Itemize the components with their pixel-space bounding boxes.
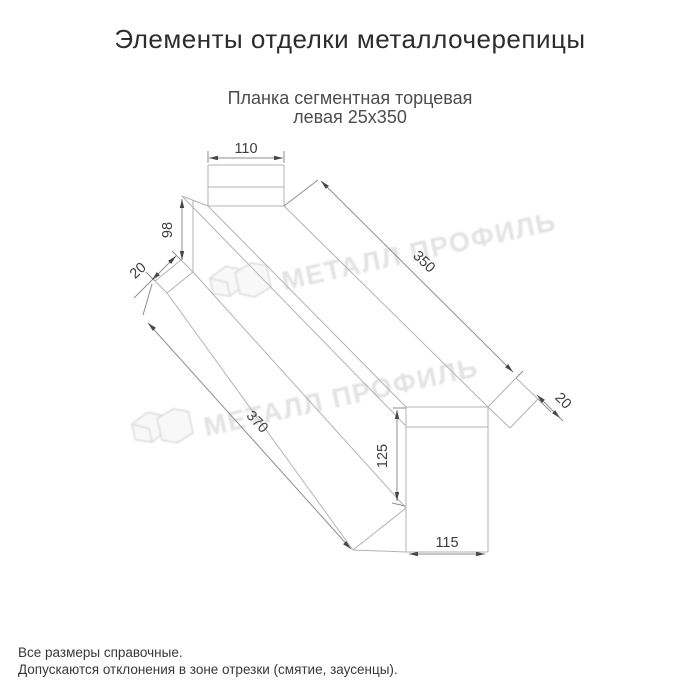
dimension-top-width: 110	[208, 141, 284, 163]
dimension-left-height: 98	[160, 199, 184, 260]
dimension-bottom-width: 115	[409, 535, 485, 556]
watermark-upper: МЕТАЛЛ ПРОФИЛЬ	[208, 194, 559, 311]
metal-profile-logo-icon	[130, 404, 194, 452]
dim-115-label: 115	[435, 535, 458, 551]
metal-profile-logo-icon	[208, 258, 272, 306]
dim-125-label: 125	[375, 444, 391, 468]
dimension-left-fold: 20	[127, 251, 181, 298]
footnotes: Все размеры справочные. Допускаются откл…	[18, 644, 398, 678]
dim-20-left-label: 20	[127, 260, 150, 283]
technical-drawing: МЕТАЛЛ ПРОФИЛЬ МЕТАЛЛ ПРОФИЛЬ	[0, 0, 700, 700]
watermark-lower: МЕТАЛЛ ПРОФИЛЬ	[130, 340, 481, 457]
dim-98-label: 98	[160, 222, 176, 238]
footnote-line-2: Допускаются отклонения в зоне отрезки (с…	[18, 661, 398, 678]
dim-20-right-label: 20	[551, 390, 574, 413]
dim-110-label: 110	[234, 141, 257, 157]
dimension-right-fold: 20	[537, 390, 574, 421]
footnote-line-1: Все размеры справочные.	[18, 644, 398, 661]
